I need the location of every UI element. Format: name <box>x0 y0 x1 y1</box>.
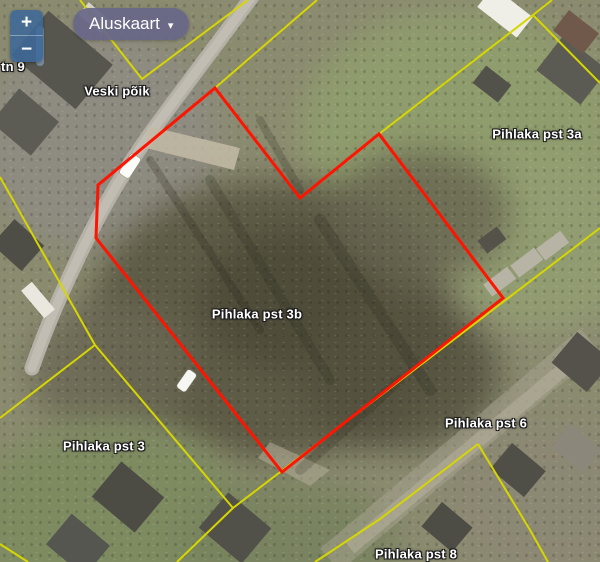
zoom-in-button[interactable]: + <box>10 10 43 36</box>
basemap-dropdown-button[interactable]: Aluskaart ▾ <box>73 8 189 40</box>
building-roof <box>92 461 164 532</box>
zoom-control: + − <box>10 10 43 62</box>
building-roof <box>21 282 55 319</box>
building-roof <box>551 424 600 473</box>
building-roof <box>0 88 59 155</box>
basemap-dropdown-label: Aluskaart <box>89 14 160 34</box>
cadastral-line <box>0 544 28 562</box>
building-roof <box>46 514 110 562</box>
vehicles-layer <box>118 153 197 393</box>
building-roof <box>477 0 532 38</box>
car <box>176 369 198 393</box>
building-roof <box>536 35 600 104</box>
cadastral-line <box>0 345 95 418</box>
zoom-out-button[interactable]: − <box>10 36 43 62</box>
map-overlay-canvas <box>0 0 600 562</box>
building-roof <box>490 443 546 497</box>
building-roof <box>473 65 512 102</box>
cadastral-line <box>379 0 552 134</box>
field-shadows <box>150 120 430 470</box>
shed-roof <box>478 226 507 253</box>
shed-roof <box>510 248 543 278</box>
building-roof <box>421 502 472 552</box>
chevron-down-icon: ▾ <box>168 19 174 32</box>
building-roof <box>199 492 271 562</box>
map-viewport[interactable]: ki tn 9Veski põikPihlaka pst 3aPihlaka p… <box>0 0 600 562</box>
